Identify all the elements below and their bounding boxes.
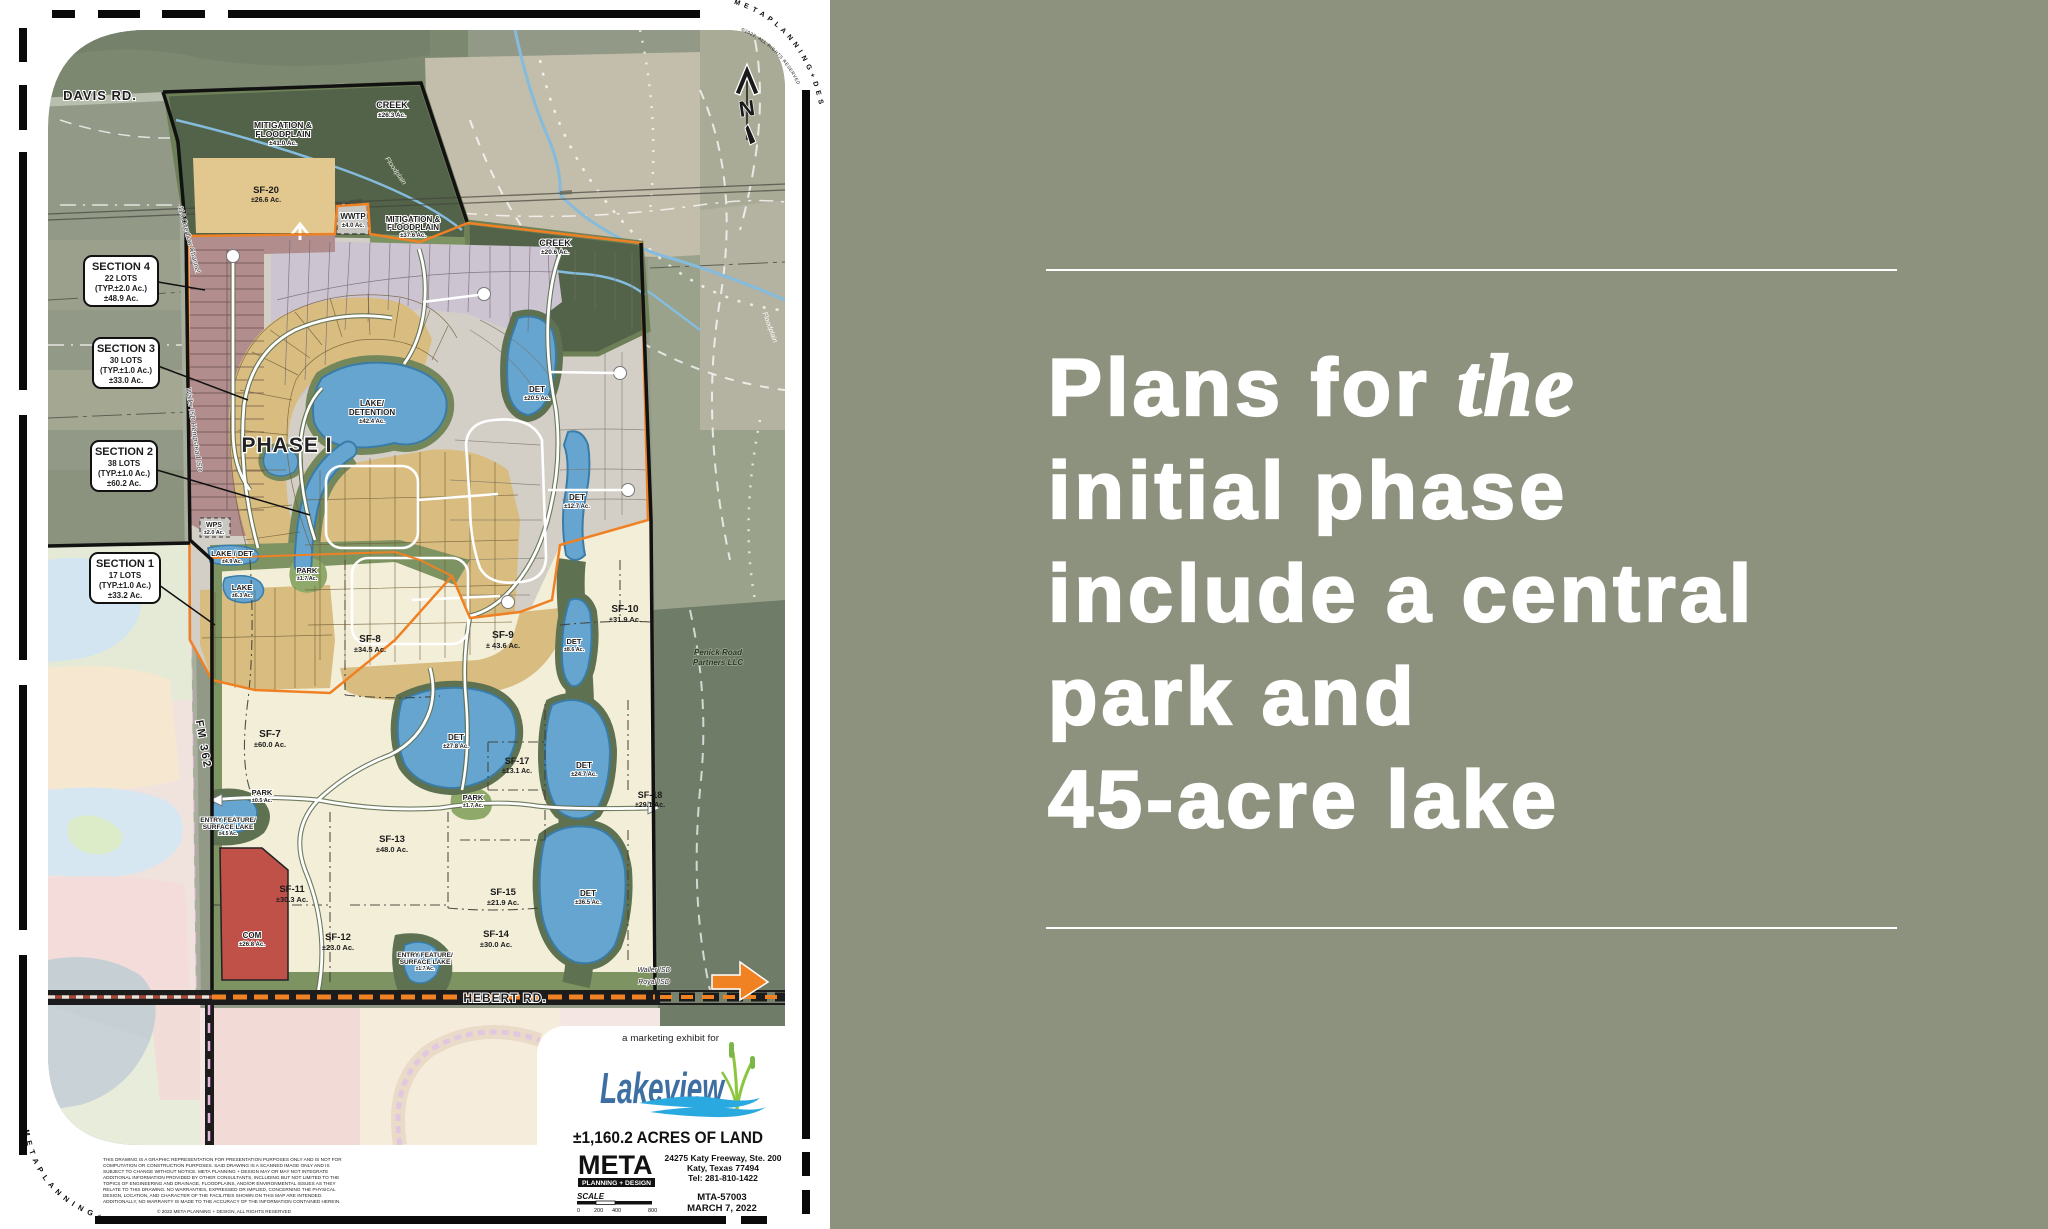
svg-text:±4.9 Ac.: ±4.9 Ac. xyxy=(222,559,243,565)
svg-text:±20.6 Ac.: ±20.6 Ac. xyxy=(541,249,569,256)
svg-text:PHASE I: PHASE I xyxy=(241,434,332,457)
svg-text:±4.5 Ac.: ±4.5 Ac. xyxy=(219,831,238,837)
svg-text:(TYP.±2.0 Ac.): (TYP.±2.0 Ac.) xyxy=(95,284,147,293)
svg-text:±4.0 Ac.: ±4.0 Ac. xyxy=(342,223,365,229)
svg-text:±30.3 Ac.: ±30.3 Ac. xyxy=(276,895,308,904)
svg-text:±26.8 Ac.: ±26.8 Ac. xyxy=(239,942,265,948)
svg-text:0: 0 xyxy=(577,1208,580,1214)
svg-text:±41.0 Ac.: ±41.0 Ac. xyxy=(269,140,297,147)
svg-text:DESIGN, LOCATION, AND CHARACTE: DESIGN, LOCATION, AND CHARACTER OF THE F… xyxy=(103,1193,322,1198)
svg-text:WWTP: WWTP xyxy=(340,212,366,221)
svg-text:±1.7 Ac.: ±1.7 Ac. xyxy=(416,966,435,972)
svg-text:SF-20: SF-20 xyxy=(253,185,279,196)
svg-text:SF-11: SF-11 xyxy=(279,884,305,895)
svg-text:DET: DET xyxy=(448,733,464,742)
svg-text:MTA-57003: MTA-57003 xyxy=(697,1192,746,1203)
svg-text:±13.1 Ac.: ±13.1 Ac. xyxy=(502,768,532,775)
svg-text:a marketing exhibit for: a marketing exhibit for xyxy=(622,1033,719,1043)
svg-text:DET: DET xyxy=(576,761,592,770)
svg-text:±2.0 Ac.: ±2.0 Ac. xyxy=(204,530,225,536)
svg-text:800: 800 xyxy=(648,1208,657,1214)
svg-text:PARK: PARK xyxy=(297,566,318,575)
svg-text:DET: DET xyxy=(580,889,596,898)
svg-text:SCALE: SCALE xyxy=(577,1192,605,1201)
svg-text:ADDITIONALLY, NO WARRANTY IS M: ADDITIONALLY, NO WARRANTY IS MADE TO THE… xyxy=(103,1199,341,1204)
svg-text:ENTRY FEATURE/: ENTRY FEATURE/ xyxy=(200,817,256,824)
svg-text:±36.5 Ac.: ±36.5 Ac. xyxy=(575,900,601,906)
svg-text:38 LOTS: 38 LOTS xyxy=(108,459,141,468)
svg-text:PLANNING + DESIGN: PLANNING + DESIGN xyxy=(582,1181,651,1187)
svg-text:±48.0 Ac.: ±48.0 Ac. xyxy=(376,845,408,854)
svg-text:SF-7: SF-7 xyxy=(259,729,281,740)
svg-text:PARK: PARK xyxy=(252,788,273,797)
svg-text:SF-14: SF-14 xyxy=(483,929,510,940)
svg-text:±6.3 Ac.: ±6.3 Ac. xyxy=(232,593,253,599)
svg-text:22 LOTS: 22 LOTS xyxy=(105,274,138,283)
svg-text:COM: COM xyxy=(243,931,262,940)
svg-text:Waller ISD: Waller ISD xyxy=(637,967,670,974)
svg-text:DET: DET xyxy=(567,637,582,646)
svg-text:Katy, Texas 77494: Katy, Texas 77494 xyxy=(687,1163,759,1173)
svg-text:DAVIS RD.: DAVIS RD. xyxy=(63,88,137,103)
svg-text:±31.9 Ac.: ±31.9 Ac. xyxy=(609,615,641,624)
svg-text:±29.1 Ac.: ±29.1 Ac. xyxy=(635,802,665,809)
svg-text:±27.8 Ac.: ±27.8 Ac. xyxy=(443,744,469,750)
svg-text:© 2022 META PLANNING + DESIGN,: © 2022 META PLANNING + DESIGN, ALL RIGHT… xyxy=(157,1208,292,1214)
svg-text:SF-15: SF-15 xyxy=(490,887,517,898)
svg-text:SF-10: SF-10 xyxy=(611,604,639,615)
svg-text:COMPUTATION OR CONSTRUCTION PU: COMPUTATION OR CONSTRUCTION PURPOSES. SA… xyxy=(103,1163,330,1168)
svg-text:TOPICS OF ENGINEERING AND DRAI: TOPICS OF ENGINEERING AND DRAINAGE, FLOO… xyxy=(103,1181,337,1186)
svg-text:DET: DET xyxy=(529,385,545,394)
svg-text:SECTION 3: SECTION 3 xyxy=(97,343,155,355)
svg-text:±12.7 Ac.: ±12.7 Ac. xyxy=(564,504,590,510)
svg-text:±1.7 Ac.: ±1.7 Ac. xyxy=(297,576,318,582)
svg-text:SURFACE LAKE: SURFACE LAKE xyxy=(203,824,254,831)
svg-text:30 LOTS: 30 LOTS xyxy=(110,356,143,365)
svg-text:(TYP.±1.0 Ac.): (TYP.±1.0 Ac.) xyxy=(98,469,150,478)
svg-text:±48.9 Ac.: ±48.9 Ac. xyxy=(104,294,138,303)
svg-text:±37.6 Ac.: ±37.6 Ac. xyxy=(400,233,426,239)
svg-text:Tel: 281-810-1422: Tel: 281-810-1422 xyxy=(688,1173,758,1183)
svg-text:(TYP.±1.0 Ac.): (TYP.±1.0 Ac.) xyxy=(100,366,152,375)
svg-text:17 LOTS: 17 LOTS xyxy=(109,571,142,580)
svg-text:±60.2 Ac.: ±60.2 Ac. xyxy=(107,479,141,488)
svg-text:SF-13: SF-13 xyxy=(379,834,405,845)
svg-text:±26.6 Ac.: ±26.6 Ac. xyxy=(251,197,281,204)
svg-text:LAKE / DET: LAKE / DET xyxy=(211,549,253,558)
svg-text:CREEK: CREEK xyxy=(376,100,408,110)
svg-text:MARCH 7, 2022: MARCH 7, 2022 xyxy=(687,1203,757,1214)
svg-text:SECTION 4: SECTION 4 xyxy=(92,261,151,273)
svg-text:THIS DRAWING IS A GRAPHIC REPR: THIS DRAWING IS A GRAPHIC REPRESENTATION… xyxy=(103,1157,342,1162)
svg-text:SECTION 1: SECTION 1 xyxy=(96,558,154,570)
svg-text:LAKE: LAKE xyxy=(232,583,252,592)
svg-text:±1.7 Ac.: ±1.7 Ac. xyxy=(463,803,484,809)
svg-text:SF-9: SF-9 xyxy=(492,630,514,641)
svg-text:DETENTION: DETENTION xyxy=(349,408,395,417)
svg-text:±42.4 Ac.: ±42.4 Ac. xyxy=(359,419,385,425)
svg-text:±33.0 Ac.: ±33.0 Ac. xyxy=(109,376,143,385)
svg-text:400: 400 xyxy=(612,1208,621,1214)
svg-text:ADDITIONAL INFORMATION PROVIDE: ADDITIONAL INFORMATION PROVIDED BY OTHER… xyxy=(103,1175,339,1180)
svg-text:(TYP.±1.0 Ac.): (TYP.±1.0 Ac.) xyxy=(99,581,151,590)
svg-text:SUBJECT TO CHANGE WITHOUT NOTI: SUBJECT TO CHANGE WITHOUT NOTICE. META P… xyxy=(103,1169,328,1174)
svg-text:LAKE/: LAKE/ xyxy=(360,399,385,408)
svg-text:±30.0 Ac.: ±30.0 Ac. xyxy=(480,940,512,949)
svg-text:WPS: WPS xyxy=(206,522,222,529)
svg-text:±8.6 Ac.: ±8.6 Ac. xyxy=(564,647,585,653)
svg-text:SF-18: SF-18 xyxy=(638,790,663,800)
svg-text:SF-17: SF-17 xyxy=(505,756,530,766)
svg-text:24275 Katy Freeway, Ste. 200: 24275 Katy Freeway, Ste. 200 xyxy=(664,1153,781,1163)
svg-text:±20.5 Ac.: ±20.5 Ac. xyxy=(524,396,550,402)
svg-text:200: 200 xyxy=(594,1208,603,1214)
svg-text:DET: DET xyxy=(569,493,585,502)
svg-text:±23.0 Ac.: ±23.0 Ac. xyxy=(322,943,354,952)
svg-text:Royal ISD: Royal ISD xyxy=(638,979,670,986)
svg-text:± 43.6 Ac.: ± 43.6 Ac. xyxy=(486,641,520,650)
svg-text:SURFACE LAKE: SURFACE LAKE xyxy=(400,959,451,966)
svg-text:FLOODPLAIN: FLOODPLAIN xyxy=(255,129,310,139)
svg-text:±0.5 Ac.: ±0.5 Ac. xyxy=(252,798,273,804)
svg-text:SF-12: SF-12 xyxy=(325,932,351,943)
svg-text:HEBERT RD.: HEBERT RD. xyxy=(463,991,546,1005)
svg-text:FLOODPLAIN: FLOODPLAIN xyxy=(387,223,439,232)
svg-text:ENTRY FEATURE/: ENTRY FEATURE/ xyxy=(397,952,453,959)
svg-text:RELATE TO THIS DRAWING. NO WAR: RELATE TO THIS DRAWING. NO WARRANTIES, E… xyxy=(103,1187,336,1192)
svg-text:PARK: PARK xyxy=(463,793,484,802)
svg-text:±34.5 Ac.: ±34.5 Ac. xyxy=(354,645,386,654)
svg-text:SF-8: SF-8 xyxy=(359,634,381,645)
svg-text:±1,160.2 ACRES OF LAND: ±1,160.2 ACRES OF LAND xyxy=(573,1129,763,1147)
svg-text:CREEK: CREEK xyxy=(539,238,571,248)
svg-text:Partners LLC: Partners LLC xyxy=(693,658,743,667)
svg-text:±26.3 Ac.: ±26.3 Ac. xyxy=(378,112,406,119)
svg-text:Penick Road: Penick Road xyxy=(694,648,743,657)
svg-text:±21.9 Ac.: ±21.9 Ac. xyxy=(487,898,519,907)
svg-text:META: META xyxy=(578,1150,653,1180)
svg-text:±24.7 Ac.: ±24.7 Ac. xyxy=(571,772,597,778)
svg-text:SECTION 2: SECTION 2 xyxy=(95,446,153,458)
svg-text:±60.0 Ac.: ±60.0 Ac. xyxy=(254,740,286,749)
svg-text:±33.2 Ac.: ±33.2 Ac. xyxy=(108,591,142,600)
